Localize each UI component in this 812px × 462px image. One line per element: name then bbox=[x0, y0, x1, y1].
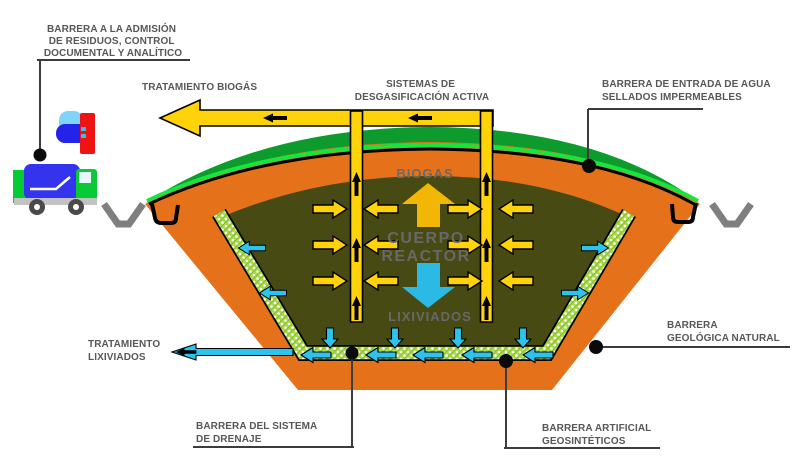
bag-detail bbox=[81, 127, 86, 131]
geological-barrier-label: BARRERA GEOLÓGICA NATURAL bbox=[667, 320, 780, 344]
bag-red bbox=[80, 113, 95, 154]
callout-dot-drainage bbox=[346, 347, 359, 360]
truck-chassis bbox=[14, 198, 97, 205]
callout-dot-geological bbox=[589, 340, 603, 354]
callout-water-entry bbox=[588, 109, 703, 161]
wheel-hub bbox=[73, 204, 79, 210]
biogas-text: BIOGAS bbox=[396, 166, 453, 181]
truck-window bbox=[79, 172, 91, 183]
truck-body bbox=[24, 164, 80, 200]
waste-bags bbox=[56, 111, 95, 154]
geosynthetic-barrier-label: BARRERA ARTIFICIAL GEOSINTÉTICOS bbox=[542, 423, 654, 447]
degassing-system-label: SISTEMAS DE DESGASIFICACIÓN ACTIVA bbox=[355, 79, 489, 103]
leachate-treatment-label: TRATAMIENTO LIXIVIADOS bbox=[88, 339, 163, 363]
cuerpo-reactor-text-line2: REACTOR bbox=[381, 248, 470, 265]
drainage-channel-right bbox=[712, 204, 751, 224]
water-entry-barrier-label: BARRERA DE ENTRADA DE AGUA SELLADOS IMPE… bbox=[602, 79, 773, 103]
callout-dot-water-entry bbox=[582, 159, 596, 173]
landfill-diagram: BIOGAS CUERPO REACTOR LIXIVIADOS bbox=[0, 0, 812, 462]
bag-detail bbox=[81, 134, 86, 138]
drainage-channel-left bbox=[104, 204, 143, 224]
cuerpo-reactor-text-line1: CUERPO bbox=[387, 230, 464, 247]
drainage-system-label: BARRERA DEL SISTEMA DE DRENAJE bbox=[196, 421, 320, 445]
lixiviados-text: LIXIVIADOS bbox=[388, 309, 472, 324]
admission-barrier-label: BARRERA A LA ADMISIÓN DE RESIDUOS, CONTR… bbox=[44, 22, 182, 59]
gas-well-left bbox=[351, 111, 363, 322]
biogas-treatment-label: TRATAMIENTO BIOGÁS bbox=[142, 80, 257, 93]
garbage-truck bbox=[13, 164, 97, 215]
wheel-hub bbox=[34, 204, 40, 210]
gas-well-right bbox=[481, 111, 493, 322]
callout-dot-admission bbox=[34, 149, 47, 162]
diagram-canvas: BIOGAS CUERPO REACTOR LIXIVIADOS bbox=[0, 0, 812, 462]
callout-dot-geosynthetic bbox=[499, 354, 513, 368]
